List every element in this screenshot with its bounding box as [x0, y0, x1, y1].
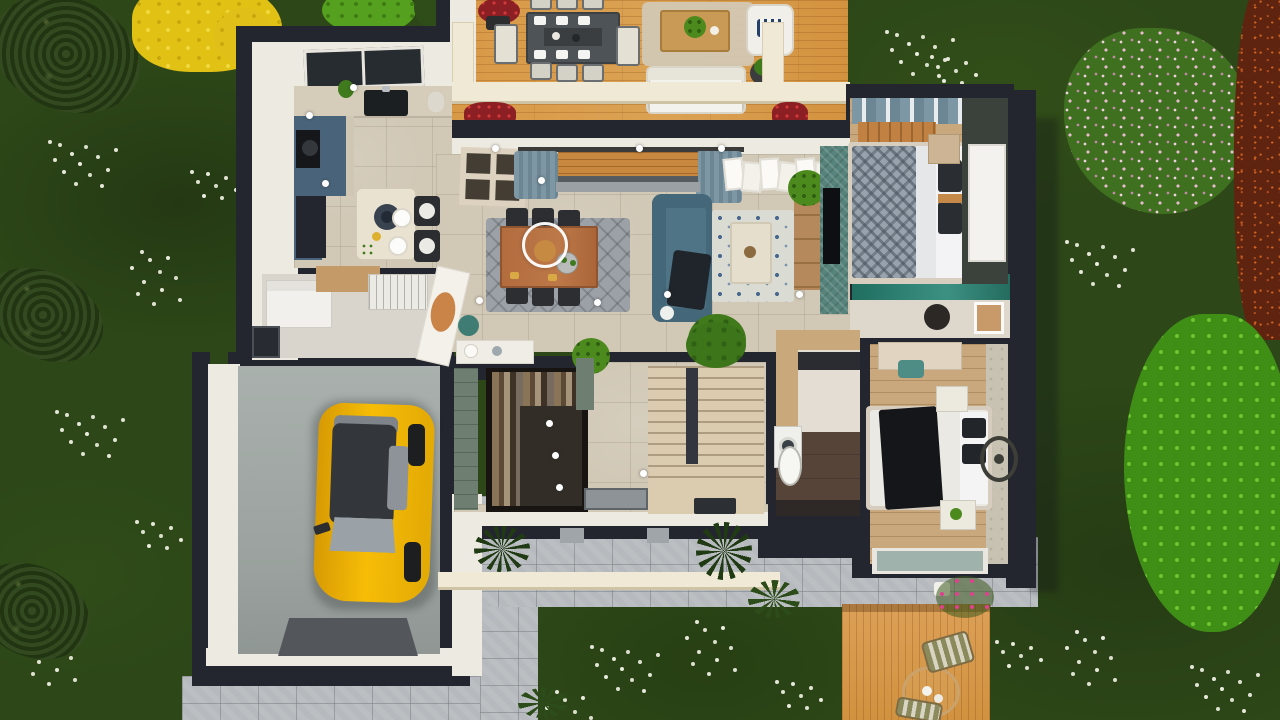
car-wheel: [408, 424, 425, 466]
bed1-sheet-fold: [916, 146, 936, 278]
bed1-nightstand[interactable]: [928, 134, 960, 164]
ceiling-spotlight: [492, 145, 499, 152]
garage-west-face: [208, 364, 240, 664]
bedroom1-wardrobe[interactable]: [968, 144, 1006, 262]
bathroom-sink[interactable]: [778, 446, 802, 486]
console-decor: [492, 346, 502, 356]
ensuite-stool[interactable]: [924, 304, 950, 330]
lemon: [372, 232, 381, 241]
car-wheel: [404, 542, 421, 582]
bed2-black-throw: [879, 406, 944, 510]
outdoor-chair[interactable]: [530, 62, 552, 80]
ceiling-spotlight: [538, 177, 545, 184]
fern-plant: [518, 688, 568, 718]
bed2-dark-pillow: [962, 418, 986, 438]
utility-window: [252, 326, 280, 358]
closet-light: [556, 484, 563, 491]
dining-chair[interactable]: [506, 208, 528, 228]
closet-tiled-wall: [454, 368, 478, 510]
bed1-dark-pillow: [938, 202, 962, 234]
place-setting: [556, 16, 568, 25]
island-countertop: [346, 116, 354, 196]
outdoor-chair[interactable]: [556, 64, 578, 82]
outdoor-chair[interactable]: [556, 0, 578, 10]
closet-light: [552, 452, 559, 459]
floor-medallion-center: [994, 454, 1004, 464]
lawn-flowers: [885, 30, 889, 34]
pergola-post: [762, 22, 784, 84]
closet-pillar: [576, 358, 594, 410]
outdoor-chair[interactable]: [530, 0, 552, 10]
ceiling-spotlight: [640, 470, 647, 477]
herb-sprig: [360, 242, 374, 258]
outdoor-chair[interactable]: [494, 24, 518, 64]
tv-screen[interactable]: [823, 188, 840, 264]
sofa-pillow: [660, 306, 674, 320]
doormat: [694, 498, 736, 514]
closet-clothes-side[interactable]: [492, 406, 520, 506]
lawn-flowers: [48, 140, 52, 144]
selection-ring[interactable]: [522, 222, 568, 268]
spiky-planter-plant: [696, 522, 752, 580]
leaning-picture: [974, 302, 1004, 334]
coffee-table-decor: [744, 246, 756, 258]
closet-glass-panel: [584, 488, 648, 510]
planter-stone-inset: [560, 528, 584, 543]
teal-pouf[interactable]: [458, 315, 479, 336]
red-leaf-tree: [1234, 0, 1280, 340]
cooking-pot: [302, 140, 318, 156]
door-sill: [556, 182, 700, 192]
outdoor-chair[interactable]: [582, 64, 604, 82]
car-side-windows: [387, 446, 409, 511]
bathroom-shelf: [798, 352, 860, 370]
nightstand-plant: [950, 508, 962, 520]
place-setting: [534, 50, 546, 59]
lawn-flowers: [695, 620, 699, 624]
ceiling-spotlight: [306, 112, 313, 119]
closet-light: [546, 420, 553, 427]
ceiling-spotlight: [476, 297, 483, 304]
bed1-dark-pillow: [938, 160, 962, 192]
lawn-flowers: [995, 640, 999, 644]
lawn-flowers: [140, 250, 144, 254]
lawn-flowers: [190, 170, 194, 174]
table-plant: [684, 16, 706, 38]
lawn-flowers: [930, 55, 934, 59]
faucet: [382, 86, 390, 92]
place-setting: [578, 16, 590, 25]
place-setting: [534, 16, 546, 25]
bougainvillea: [936, 576, 994, 618]
bistro-plate: [922, 686, 932, 696]
car-windshield: [329, 517, 396, 553]
vanity-counter[interactable]: [776, 500, 860, 516]
ceiling-spotlight: [594, 299, 601, 306]
stair-handrail: [686, 368, 698, 464]
stair-plant: [686, 322, 746, 368]
lawn-flowers: [135, 520, 139, 524]
lawn-flowers: [1075, 630, 1079, 634]
table-decor: [548, 274, 557, 281]
ceiling-spotlight: [322, 180, 329, 187]
lawn-flowers: [55, 410, 59, 414]
kitchen-pantry[interactable]: [296, 196, 326, 258]
bed1-duvet: [852, 146, 916, 278]
spiky-planter-plant: [474, 526, 530, 572]
place-setting: [556, 50, 568, 59]
ceiling-spotlight: [718, 145, 725, 152]
closet-clothes-rail[interactable]: [492, 372, 584, 406]
tv-console[interactable]: [794, 192, 822, 290]
place-setting: [578, 50, 590, 59]
plate: [388, 236, 408, 256]
outdoor-chair[interactable]: [582, 0, 604, 10]
ceiling-spotlight: [636, 145, 643, 152]
fern-plant: [748, 580, 800, 618]
tray-greens: [570, 260, 576, 266]
bed1-accent-strip: [938, 194, 962, 203]
bedroom1-curtains[interactable]: [852, 98, 968, 124]
wall-garage-south: [192, 664, 470, 686]
lawn-flowers: [775, 680, 779, 684]
sofa-throw: [666, 250, 711, 311]
lawn-flowers: [1190, 665, 1194, 669]
ceiling-spotlight: [350, 84, 357, 91]
pergola-beam: [436, 82, 850, 104]
counter-decor: [428, 92, 444, 112]
planter-stone-inset: [647, 528, 669, 543]
plate: [392, 208, 412, 228]
outdoor-chair[interactable]: [616, 26, 640, 66]
decor-bowl: [572, 34, 580, 42]
table-decor: [510, 272, 519, 279]
candle: [552, 32, 560, 40]
bed2-nightstand[interactable]: [936, 386, 968, 412]
kitchen-sink[interactable]: [364, 90, 408, 116]
curtain[interactable]: [514, 151, 558, 199]
bedroom2-glass-door[interactable]: [872, 548, 988, 574]
ceiling-spotlight: [664, 291, 671, 298]
floor-plan-canvas: [0, 0, 1280, 720]
ceiling-spotlight: [796, 291, 803, 298]
console-bowl: [464, 344, 478, 358]
chair-seat: [419, 203, 435, 219]
decor-item: [710, 26, 719, 35]
garage-ramp: [278, 618, 418, 656]
bistro-plate: [934, 694, 943, 703]
desk-chair[interactable]: [898, 360, 924, 378]
pergola-post: [452, 22, 474, 84]
chair-seat: [419, 238, 435, 254]
car-roof-glass: [329, 423, 396, 525]
drying-rack[interactable]: [368, 274, 428, 310]
lawn-flowers: [590, 645, 594, 649]
lawn-flowers: [1065, 240, 1069, 244]
staircase-treads[interactable]: [648, 366, 764, 478]
